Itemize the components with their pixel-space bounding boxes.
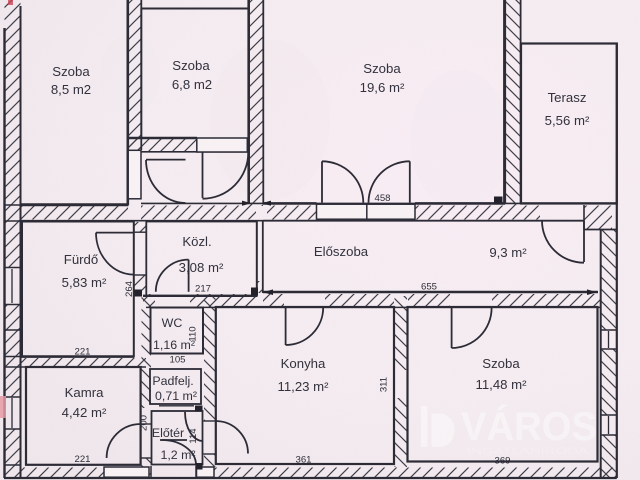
svg-text:Közl.: Közl. — [182, 234, 211, 249]
svg-text:Padfelj.: Padfelj. — [152, 374, 193, 388]
svg-text:655: 655 — [421, 282, 437, 293]
svg-text:INGATLANIRODA: INGATLANIRODA — [467, 446, 589, 457]
svg-text:3,08 m²: 3,08 m² — [179, 260, 224, 275]
svg-text:0,71 m²: 0,71 m² — [155, 389, 197, 403]
svg-text:Kamra: Kamra — [65, 385, 105, 400]
svg-text:200: 200 — [139, 415, 150, 431]
svg-text:VÁROS: VÁROS — [461, 404, 597, 449]
svg-text:105: 105 — [169, 355, 185, 366]
svg-text:Szoba: Szoba — [482, 356, 520, 371]
svg-text:6,8 m2: 6,8 m2 — [172, 77, 212, 92]
svg-text:264: 264 — [124, 280, 135, 297]
svg-text:19,6 m²: 19,6 m² — [360, 80, 405, 95]
svg-text:Terasz: Terasz — [548, 90, 587, 105]
svg-text:5,83 m²: 5,83 m² — [62, 275, 107, 290]
svg-text:9,3 m²: 9,3 m² — [489, 245, 527, 260]
svg-text:Előszoba: Előszoba — [314, 244, 369, 259]
svg-text:361: 361 — [295, 455, 311, 466]
svg-text:WC: WC — [162, 316, 183, 330]
svg-text:221: 221 — [74, 347, 90, 358]
svg-text:Szoba: Szoba — [363, 61, 401, 76]
svg-text:110: 110 — [188, 326, 199, 341]
svg-text:114: 114 — [188, 428, 199, 444]
svg-text:1,2 m²: 1,2 m² — [160, 448, 195, 462]
svg-text:Szoba: Szoba — [172, 58, 210, 73]
svg-text:Előtér: Előtér — [152, 426, 184, 440]
svg-text:5,56 m²: 5,56 m² — [545, 113, 590, 128]
svg-text:Konyha: Konyha — [281, 356, 326, 371]
svg-text:Fürdő: Fürdő — [64, 252, 98, 267]
svg-text:4,42 m²: 4,42 m² — [62, 405, 107, 420]
svg-text:369: 369 — [494, 456, 510, 467]
svg-text:11,23 m²: 11,23 m² — [277, 379, 329, 394]
svg-text:311: 311 — [379, 377, 390, 392]
svg-text:217: 217 — [195, 284, 211, 295]
svg-text:8,5 m2: 8,5 m2 — [51, 82, 91, 97]
svg-text:11,48 m²: 11,48 m² — [475, 377, 527, 392]
svg-text:221: 221 — [74, 454, 90, 465]
svg-text:458: 458 — [374, 193, 390, 204]
svg-text:Szoba: Szoba — [52, 64, 90, 79]
